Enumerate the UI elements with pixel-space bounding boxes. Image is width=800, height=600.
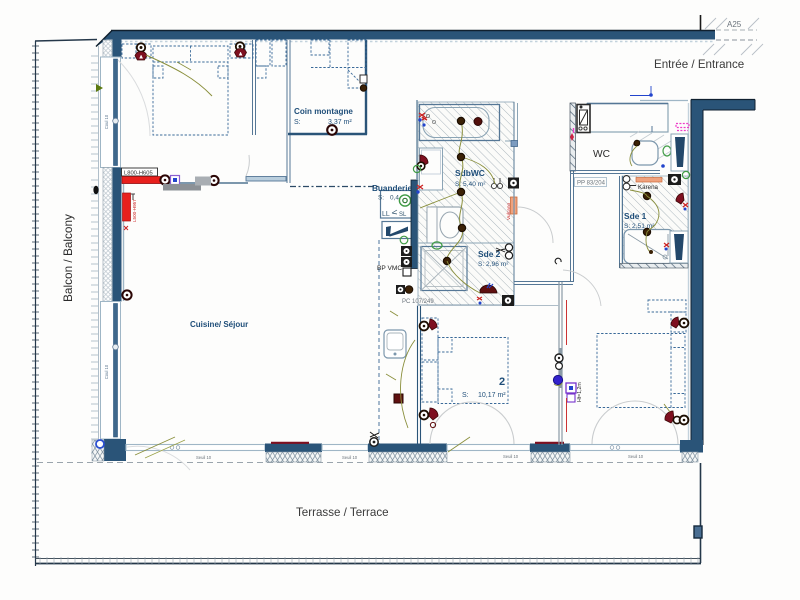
svg-text:Seuil 10: Seuil 10 [628, 454, 644, 459]
svg-text:Coin montagne: Coin montagne [294, 107, 353, 116]
svg-text:Sde 1: Sde 1 [624, 211, 647, 221]
svg-text:Ht=1,2m: Ht=1,2m [577, 382, 583, 402]
svg-text:Seuil 10: Seuil 10 [503, 454, 519, 459]
svg-text:L800-H605: L800-H605 [124, 171, 153, 177]
svg-text:Vulcano: Vulcano [506, 203, 512, 220]
svg-text:S: 2,96 m²: S: 2,96 m² [478, 261, 509, 268]
svg-text:Buanderie: Buanderie [372, 184, 412, 193]
svg-text:Coul 10: Coul 10 [104, 114, 109, 129]
svg-text:10,17 m²: 10,17 m² [478, 392, 506, 399]
svg-text:Entrée / Entrance: Entrée / Entrance [654, 58, 744, 71]
svg-text:SdbWC: SdbWC [455, 168, 485, 178]
svg-text:S:: S: [462, 392, 469, 399]
svg-text:Coul 10: Coul 10 [104, 364, 109, 379]
svg-text:L500-H957: L500-H957 [132, 199, 137, 222]
svg-text:Seuil 10: Seuil 10 [342, 455, 358, 460]
svg-text:S:: S: [378, 195, 384, 202]
svg-text:A25: A25 [727, 20, 742, 29]
svg-text:Balcon / Balcony: Balcon / Balcony [61, 214, 75, 302]
svg-text:Karena: Karena [638, 184, 659, 191]
svg-text:LL: LL [382, 211, 390, 218]
svg-text:PP 83/204: PP 83/204 [577, 181, 606, 187]
svg-text:Seuil 10: Seuil 10 [196, 455, 212, 460]
svg-text:BP VMC: BP VMC [377, 265, 402, 272]
svg-text:Terrasse / Terrace: Terrasse / Terrace [296, 506, 389, 519]
svg-text:Cuisine/ Séjour: Cuisine/ Séjour [190, 320, 248, 329]
svg-text:WC: WC [593, 149, 610, 160]
svg-text:PC 107/249: PC 107/249 [402, 299, 434, 305]
svg-text:0,4: 0,4 [390, 195, 399, 202]
svg-text:2: 2 [499, 376, 505, 388]
svg-text:S:: S: [294, 119, 301, 126]
svg-text:SL: SL [399, 212, 407, 218]
